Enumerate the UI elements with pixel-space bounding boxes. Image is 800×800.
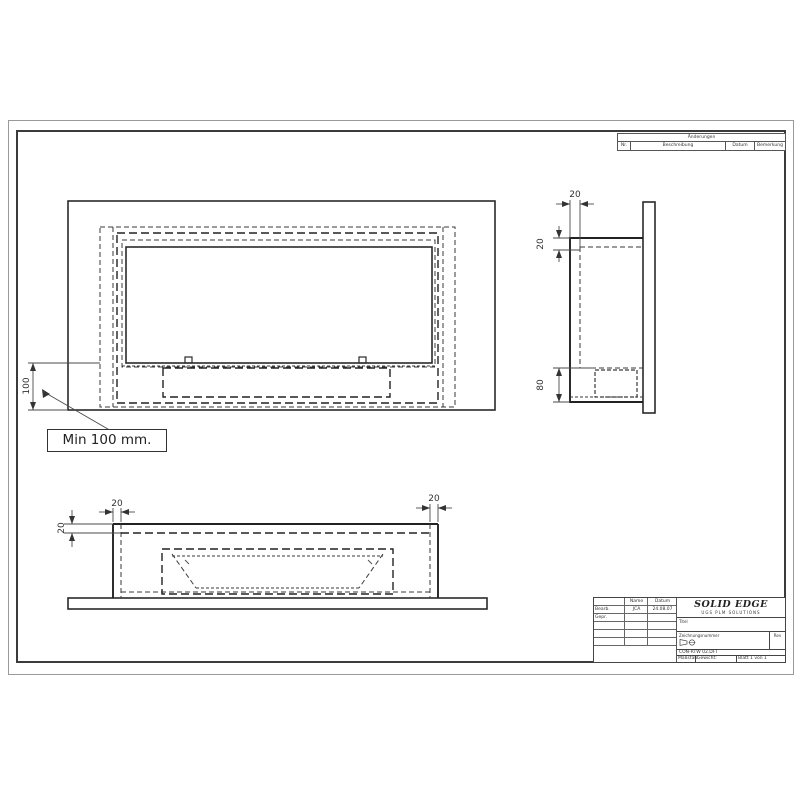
front-clip-right bbox=[359, 357, 366, 363]
note-min-100: Min 100 mm. bbox=[47, 429, 167, 452]
bottom-view bbox=[68, 524, 487, 609]
front-hidden-box bbox=[100, 227, 455, 407]
side-burner-hidden bbox=[595, 370, 637, 397]
title-block: Name Datum Bearb. JCA 24.08.07 Gepr. SOL… bbox=[593, 597, 786, 663]
tb-drawn-name: JCA bbox=[624, 606, 647, 613]
front-view bbox=[68, 201, 495, 410]
revision-col-description: Beschreibung bbox=[630, 142, 725, 150]
tb-checked-label: Gepr. bbox=[594, 614, 624, 621]
logo-text: SOLID EDGE bbox=[694, 600, 768, 610]
side-wall-plate bbox=[643, 202, 655, 413]
side-dimensions bbox=[553, 200, 595, 402]
front-clip-left bbox=[185, 357, 192, 363]
logo-subtitle: UGS PLM SOLUTIONS bbox=[701, 610, 760, 615]
drawing-linework bbox=[0, 0, 800, 800]
tb-rev-cell: Rev bbox=[769, 632, 785, 649]
note-leader-line bbox=[44, 392, 113, 432]
dim-bottom-side-20: 20 bbox=[57, 518, 67, 538]
tb-drawing-number-cell: Zeichnungsnummer bbox=[677, 632, 769, 649]
revision-table: Änderungen Nr. Beschreibung Datum Bemerk… bbox=[617, 133, 786, 151]
revision-col-date: Datum bbox=[725, 142, 754, 150]
revision-col-remark: Bemerkung bbox=[754, 142, 785, 150]
front-burner-hidden bbox=[163, 368, 390, 397]
dim-side-80: 80 bbox=[536, 375, 546, 395]
revision-col-nr: Nr. bbox=[618, 142, 630, 150]
dim-front-100: 100 bbox=[22, 376, 32, 396]
tb-title-cell: Titel bbox=[677, 618, 785, 632]
tb-drawn-date: 24.08.07 bbox=[647, 606, 676, 613]
side-body-outline bbox=[570, 238, 643, 402]
front-window-opening bbox=[126, 247, 432, 363]
dim-side-left-20: 20 bbox=[536, 234, 546, 254]
drawing-sheet: 100 20 20 80 20 20 20 Min 100 mm. Änderu… bbox=[0, 0, 800, 800]
tb-scale-label: Maßstab: bbox=[677, 656, 696, 662]
tb-col-date: Datum bbox=[647, 598, 676, 605]
tb-sheet-label: Blatt 1 von 1 bbox=[737, 656, 785, 662]
dim-bottom-left-20: 20 bbox=[107, 499, 127, 509]
bottom-wall-plate bbox=[68, 598, 487, 609]
bottom-dimensions bbox=[64, 504, 452, 547]
dim-bottom-right-20: 20 bbox=[424, 494, 444, 504]
projection-symbol-icon bbox=[679, 638, 697, 647]
front-hidden-frame bbox=[117, 233, 438, 403]
tb-drawn-label: Bearb. bbox=[594, 606, 624, 613]
title-block-signature-table: Name Datum Bearb. JCA 24.08.07 Gepr. bbox=[594, 598, 677, 662]
side-view bbox=[570, 202, 655, 413]
tb-weight-label: Gewicht: bbox=[696, 656, 737, 662]
tb-col-name: Name bbox=[624, 598, 647, 605]
dim-side-top-20: 20 bbox=[565, 190, 585, 200]
solid-edge-logo: SOLID EDGE UGS PLM SOLUTIONS bbox=[677, 598, 785, 618]
revision-table-title: Änderungen bbox=[618, 134, 785, 142]
